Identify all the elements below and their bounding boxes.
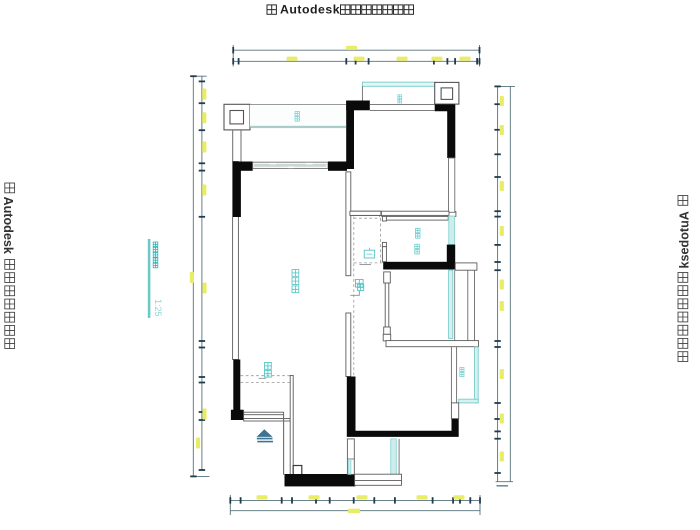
svg-text:Autodesk: Autodesk (280, 3, 340, 17)
svg-text:1:25: 1:25 (153, 299, 163, 317)
svg-text:ksedotuA: ksedotuA (678, 211, 692, 268)
svg-text:Autodesk: Autodesk (1, 197, 15, 255)
